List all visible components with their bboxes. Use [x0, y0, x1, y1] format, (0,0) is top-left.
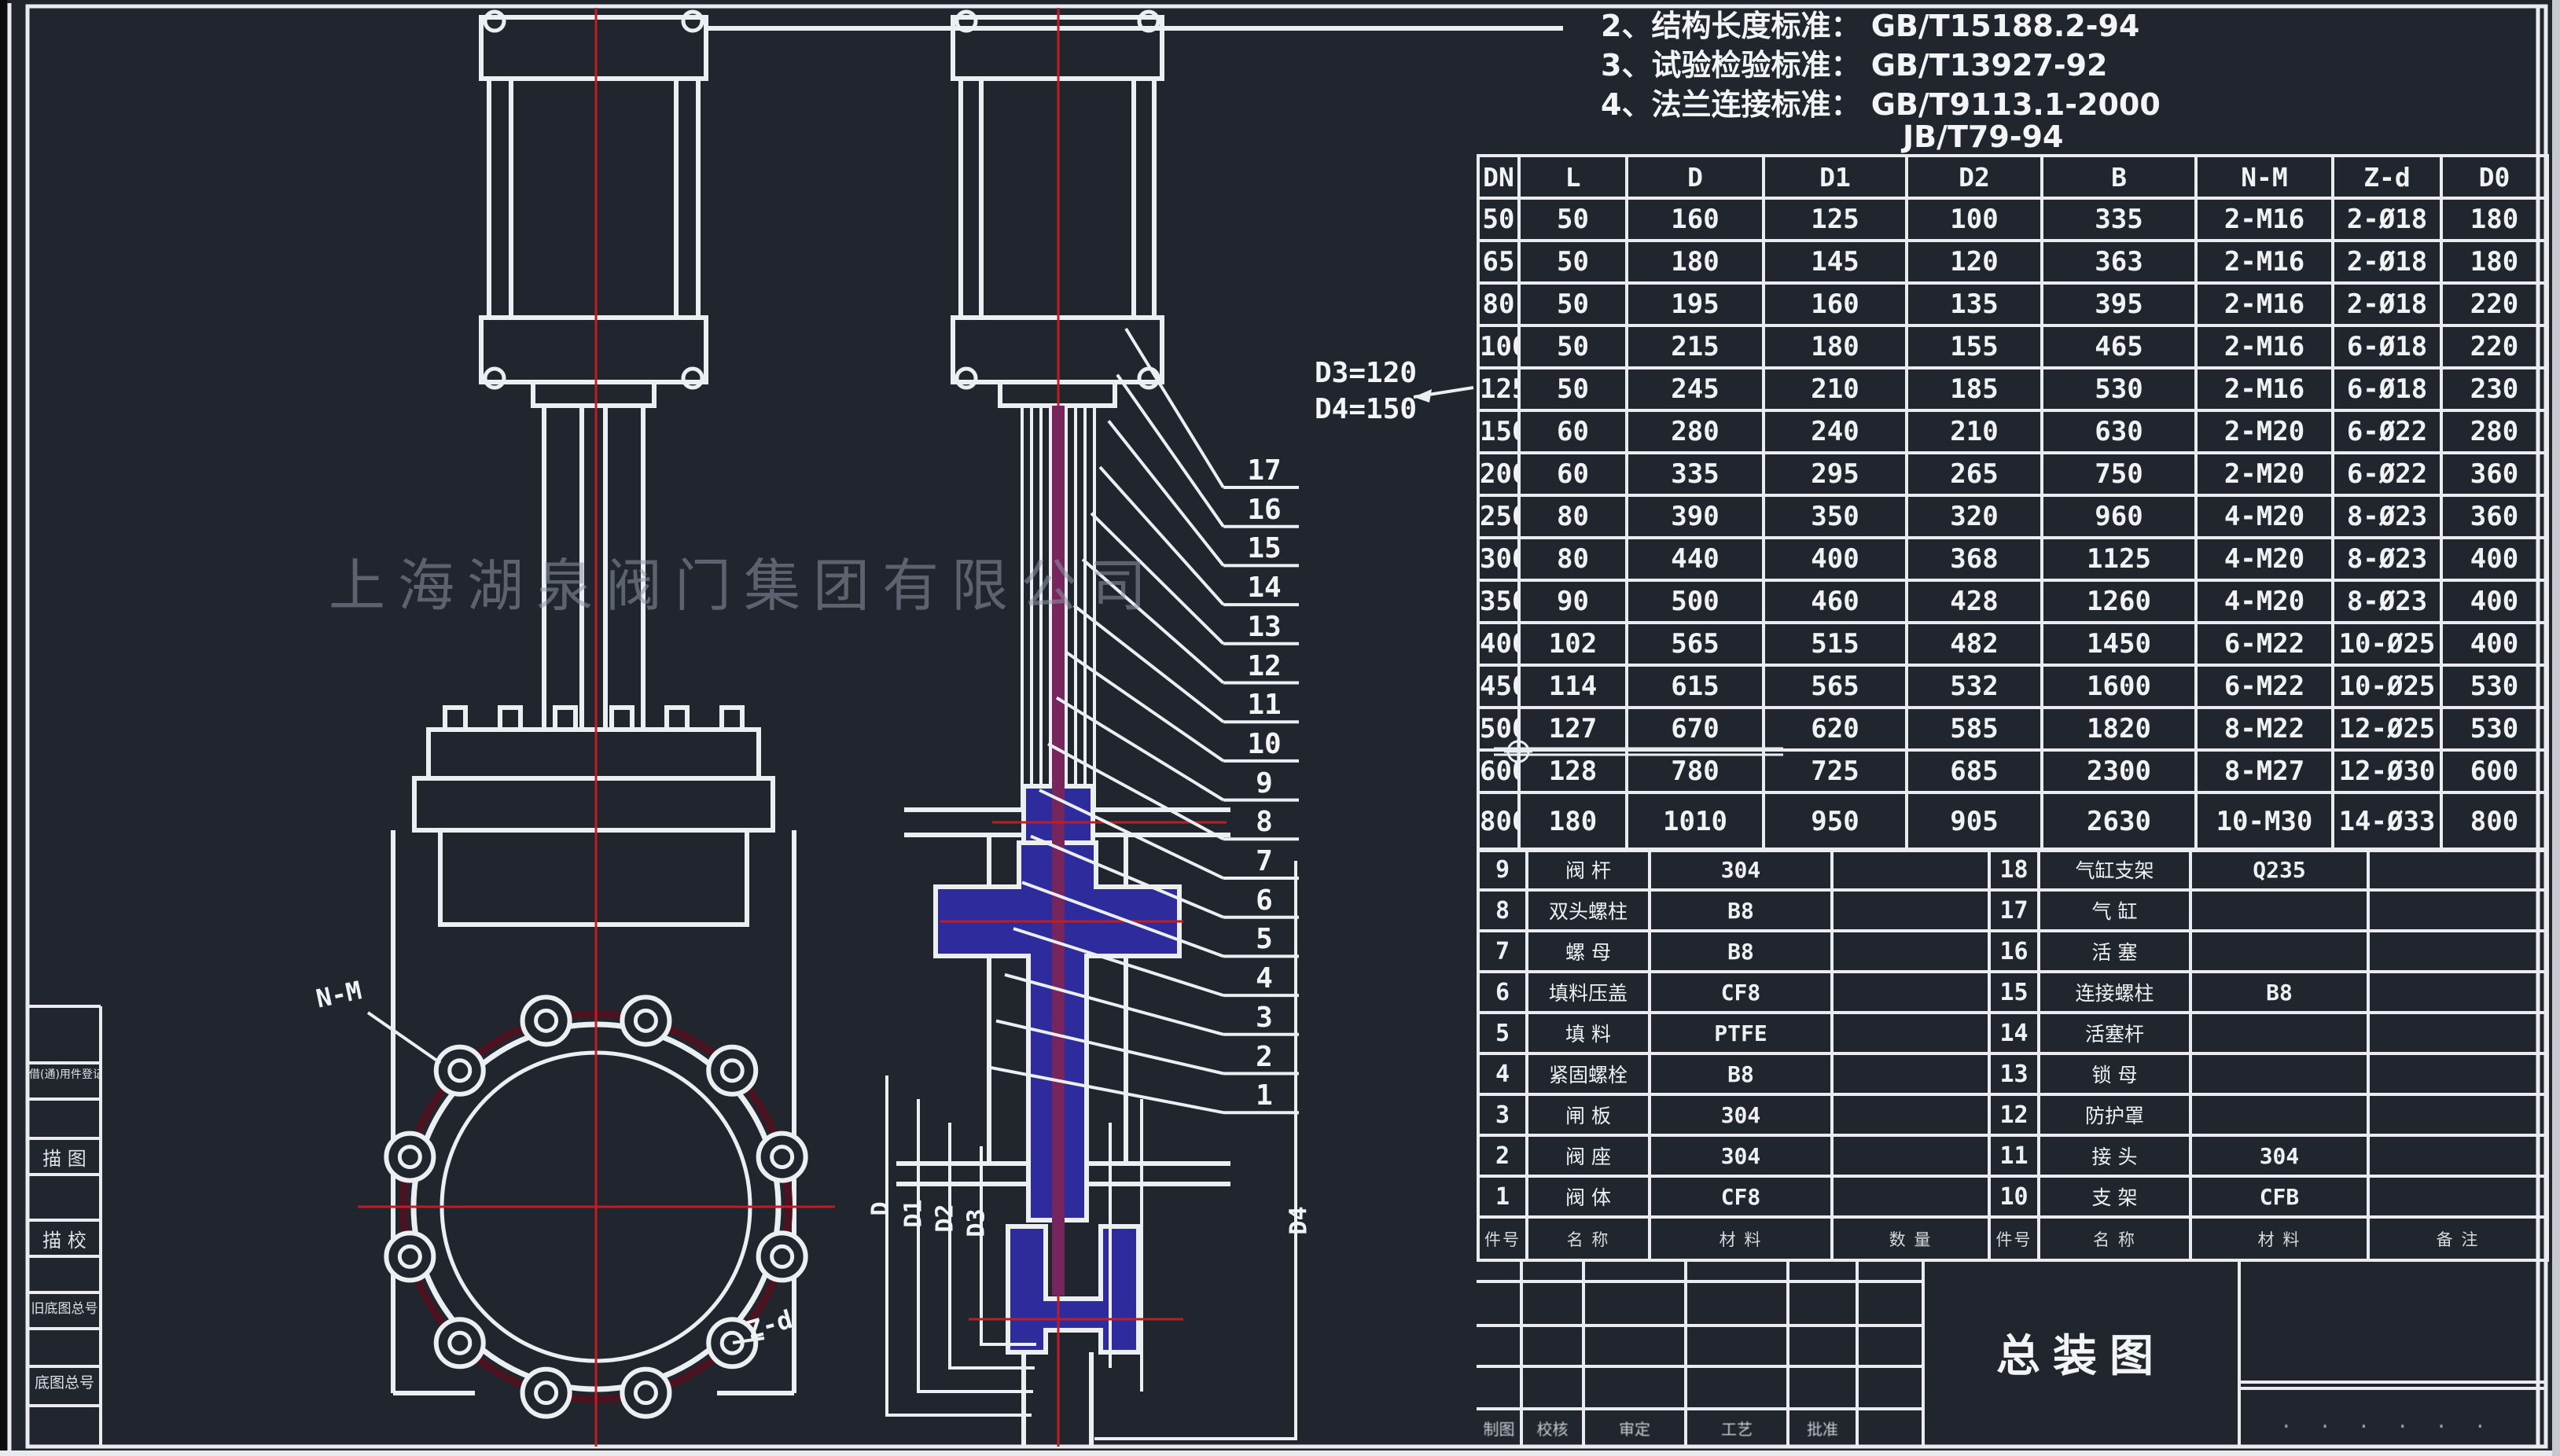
dim-row-dn-50-cell: 2-M16: [2196, 198, 2333, 241]
dim-row-dn-450-cell: 1600: [2042, 665, 2196, 708]
dim-row-dn-50-cell: 100: [1907, 198, 2042, 241]
part-row-4: 4紧固螺栓B8: [1478, 1053, 1989, 1094]
dim-row-dn-500-cell: 12-Ø25: [2333, 708, 2441, 750]
sign-cell-2: 审定: [1583, 1417, 1686, 1439]
dim-row-dn-400-cell: 565: [1627, 623, 1764, 665]
standard-note-3: 3、试验检验标准： GB/T13927-92: [1601, 41, 2108, 84]
bolt-lug: [436, 1047, 484, 1094]
dim-row-dn-600-cell: 128: [1519, 750, 1627, 792]
dim-row-dn-125-cell: 245: [1627, 368, 1764, 410]
part-row-13: 13锁 母: [1989, 1053, 2547, 1094]
part-row-15: 15连接螺柱B8: [1989, 972, 2547, 1013]
part-row-18-cell: [2368, 849, 2547, 890]
parts-table-left: 9阀 杆3048双头螺柱B87螺 母B86填料压盖CF85填 料PTFE4紧固螺…: [1477, 847, 1991, 1262]
note-label: 4、法兰连接标准：: [1601, 87, 1860, 122]
part-row-10-cell: CFB: [2190, 1176, 2368, 1217]
dim-row-dn-100-cell: 2-M16: [2196, 325, 2333, 368]
part-row-13-cell: [2190, 1053, 2368, 1094]
dim-header-row-cell: Z-d: [2333, 156, 2441, 198]
sign-cell-4: 批准: [1788, 1417, 1857, 1439]
dim-row-dn-65-cell: 2-M16: [2196, 241, 2333, 283]
dim-row-dn-450: 45011461556553216006-M2210-Ø25530: [1478, 665, 2547, 708]
dim-label-d1: D1: [900, 1190, 928, 1237]
part-row-4-cell: 紧固螺栓: [1527, 1053, 1650, 1094]
dim-row-dn-125-cell: 125: [1478, 368, 1519, 410]
dim-row-dn-300-cell: 400: [1764, 538, 1907, 580]
parts-table-right: 18气缸支架Q23517气 缸16活 塞15连接螺柱B814活塞杆13锁 母12…: [1988, 847, 2549, 1262]
dim-row-dn-800-cell: 905: [1907, 792, 2042, 851]
dim-row-dn-65-cell: 145: [1764, 241, 1907, 283]
parts-header-row-cell: 名 称: [1527, 1217, 1650, 1260]
callout-number-15: 15: [1227, 532, 1302, 564]
part-row-6-cell: 填料压盖: [1527, 972, 1650, 1013]
dim-row-dn-250-cell: 4-M20: [2196, 495, 2333, 538]
part-row-16-cell: 16: [1989, 931, 2039, 972]
dim-row-dn-125-cell: 230: [2441, 368, 2547, 410]
part-row-15-cell: 15: [1989, 972, 2039, 1013]
part-row-11-cell: 304: [2190, 1135, 2368, 1176]
dim-header-row-cell: D0: [2441, 156, 2547, 198]
dim-row-dn-500-cell: 620: [1764, 708, 1907, 750]
dim-row-dn-65-cell: 180: [2441, 241, 2547, 283]
dim-row-dn-400-cell: 482: [1907, 623, 2042, 665]
part-row-11-cell: 接 头: [2039, 1135, 2190, 1176]
callout-number-7: 7: [1227, 845, 1302, 877]
left-page-edge: [0, 0, 7, 1456]
dim-header-row: DNLDD1D2BN-MZ-dD0: [1478, 156, 2547, 198]
dim-row-dn-800-cell: 800: [1478, 792, 1519, 851]
part-row-13-cell: [2368, 1053, 2547, 1094]
dim-row-dn-200: 200603352952657502-M206-Ø22360: [1478, 453, 2547, 495]
bolt-lug: [386, 1233, 433, 1280]
part-row-3-cell: 闸 板: [1527, 1094, 1650, 1135]
part-row-17-cell: 气 缸: [2039, 890, 2190, 931]
dim-row-dn-450-cell: 450: [1478, 665, 1519, 708]
part-row-8: 8双头螺柱B8: [1478, 890, 1989, 931]
part-row-14-cell: [2368, 1013, 2547, 1053]
dim-row-dn-600-cell: 8-M27: [2196, 750, 2333, 792]
dim-row-dn-100-cell: 220: [2441, 325, 2547, 368]
dim-row-dn-125-cell: 50: [1519, 368, 1627, 410]
dim-row-dn-300-cell: 4-M20: [2196, 538, 2333, 580]
dim-row-dn-125-cell: 2-M16: [2196, 368, 2333, 410]
dim-row-dn-250-cell: 350: [1764, 495, 1907, 538]
part-row-11-cell: [2368, 1135, 2547, 1176]
dim-row-dn-350-cell: 428: [1907, 580, 2042, 623]
part-row-17: 17气 缸: [1989, 890, 2547, 931]
dim-row-dn-80-cell: 2-Ø18: [2333, 283, 2441, 325]
margin-label-3: 旧底图总号: [29, 1297, 100, 1317]
dim-row-dn-125-cell: 210: [1764, 368, 1907, 410]
bolt-lug: [436, 1319, 484, 1366]
part-row-9-cell: [1832, 849, 1989, 890]
part-row-12-cell: 12: [1989, 1094, 2039, 1135]
part-row-13-cell: 锁 母: [2039, 1053, 2190, 1094]
dim-row-dn-80-cell: 160: [1764, 283, 1907, 325]
part-row-14: 14活塞杆: [1989, 1013, 2547, 1053]
dim-row-dn-300-cell: 80: [1519, 538, 1627, 580]
part-row-8-cell: B8: [1650, 890, 1832, 931]
standard-note-2: 2、结构长度标准： GB/T15188.2-94: [1601, 2, 2139, 45]
dim-row-dn-800-cell: 800: [2441, 792, 2547, 851]
dim-row-dn-50-cell: 2-Ø18: [2333, 198, 2441, 241]
dim-row-dn-150-cell: 240: [1764, 410, 1907, 453]
dim-row-dn-400-cell: 515: [1764, 623, 1907, 665]
dim-row-dn-500-cell: 670: [1627, 708, 1764, 750]
callout-number-8: 8: [1227, 806, 1302, 838]
dim-row-dn-150-cell: 150: [1478, 410, 1519, 453]
dim-row-dn-400-cell: 400: [1478, 623, 1519, 665]
part-row-2-cell: 阀 座: [1527, 1135, 1650, 1176]
dim-row-dn-65-cell: 50: [1519, 241, 1627, 283]
dim-row-dn-450-cell: 565: [1764, 665, 1907, 708]
part-row-14-cell: [2190, 1013, 2368, 1053]
dim-row-dn-600: 60012878072568523008-M2712-Ø30600: [1478, 750, 2547, 792]
note-value: GB/T9113.1-2000: [1871, 87, 2161, 122]
dim-row-dn-80-cell: 2-M16: [2196, 283, 2333, 325]
dim-row-dn-150-cell: 6-Ø22: [2333, 410, 2441, 453]
dimension-table-grid: DNLDD1D2BN-MZ-dD050501601251003352-M162-…: [1477, 154, 2549, 852]
dim-row-dn-200-cell: 200: [1478, 453, 1519, 495]
dim-row-dn-200-cell: 6-Ø22: [2333, 453, 2441, 495]
dim-row-dn-65-cell: 180: [1627, 241, 1764, 283]
dim-row-dn-250-cell: 250: [1478, 495, 1519, 538]
part-row-11: 11接 头304: [1989, 1135, 2547, 1176]
dim-row-dn-250-cell: 8-Ø23: [2333, 495, 2441, 538]
callout-number-1: 1: [1227, 1079, 1302, 1112]
bolt-lug: [523, 997, 570, 1044]
callout-number-6: 6: [1227, 884, 1302, 917]
dimension-table: DNLDD1D2BN-MZ-dD050501601251003352-M162-…: [1477, 154, 2549, 852]
dim-row-dn-600-cell: 600: [2441, 750, 2547, 792]
part-row-5-cell: [1832, 1013, 1989, 1053]
part-row-18-cell: 18: [1989, 849, 2039, 890]
sign-cell-1: 校核: [1521, 1417, 1583, 1439]
dim-row-dn-150-cell: 210: [1907, 410, 2042, 453]
dim-row-dn-500-cell: 8-M22: [2196, 708, 2333, 750]
callout-number-14: 14: [1227, 572, 1302, 604]
bolt-lug: [759, 1134, 806, 1181]
part-row-15-cell: [2368, 972, 2547, 1013]
cad-drawing-sheet: 2、结构长度标准： GB/T15188.2-94 3、试验检验标准： GB/T1…: [0, 0, 2560, 1456]
dim-row-dn-350-cell: 350: [1478, 580, 1519, 623]
dim-row-dn-800-cell: 10-M30: [2196, 792, 2333, 851]
dim-row-dn-125: 125502452101855302-M166-Ø18230: [1478, 368, 2547, 410]
bolt-lug: [622, 997, 669, 1044]
dim-row-dn-800: 8001801010950905263010-M3014-Ø33800: [1478, 792, 2547, 851]
bolt-lug: [386, 1134, 433, 1181]
part-row-16-cell: [2190, 931, 2368, 972]
dim-row-dn-600-cell: 600: [1478, 750, 1519, 792]
dim-row-dn-65-cell: 363: [2042, 241, 2196, 283]
dim-row-dn-125-cell: 6-Ø18: [2333, 368, 2441, 410]
part-row-8-cell: [1832, 890, 1989, 931]
dim-row-dn-350-cell: 4-M20: [2196, 580, 2333, 623]
dim-header-row-cell: D: [1627, 156, 1764, 198]
note-label: 3、试验检验标准：: [1601, 48, 1860, 83]
dim-row-dn-125-cell: 530: [2042, 368, 2196, 410]
dim-row-dn-600-cell: 2300: [2042, 750, 2196, 792]
part-row-10: 10支 架CFB: [1989, 1176, 2547, 1217]
dim-row-dn-200-cell: 60: [1519, 453, 1627, 495]
part-row-6-cell: 6: [1478, 972, 1527, 1013]
callout-number-10: 10: [1227, 728, 1302, 760]
bolt-lug: [708, 1047, 756, 1094]
dim-row-dn-350-cell: 500: [1627, 580, 1764, 623]
dim-row-dn-80: 80501951601353952-M162-Ø18220: [1478, 283, 2547, 325]
dim-row-dn-400-cell: 400: [2441, 623, 2547, 665]
parts-header-row-cell: 件号: [1478, 1217, 1527, 1260]
part-row-1-cell: CF8: [1650, 1176, 1832, 1217]
dim-header-row-cell: L: [1519, 156, 1627, 198]
parts-header-row-cell: 件号: [1989, 1217, 2039, 1260]
dim-row-dn-350-cell: 8-Ø23: [2333, 580, 2441, 623]
callout-number-2: 2: [1227, 1041, 1302, 1073]
dim-row-dn-450-cell: 615: [1627, 665, 1764, 708]
dim-row-dn-300: 3008044040036811254-M208-Ø23400: [1478, 538, 2547, 580]
part-row-9-cell: 9: [1478, 849, 1527, 890]
part-row-12-cell: 防护罩: [2039, 1094, 2190, 1135]
parts-header-row-cell: 材 料: [1650, 1217, 1832, 1260]
note-value: GB/T13927-92: [1871, 48, 2108, 83]
part-row-1-cell: 1: [1478, 1176, 1527, 1217]
note-value: JB/T79-94: [1903, 119, 2063, 154]
part-row-4-cell: 4: [1478, 1053, 1527, 1094]
part-row-2: 2阀 座304: [1478, 1135, 1989, 1176]
dim-row-dn-50-cell: 50: [1519, 198, 1627, 241]
dim-row-dn-200-cell: 335: [1627, 453, 1764, 495]
dim-row-dn-300-cell: 1125: [2042, 538, 2196, 580]
dim-row-dn-600-cell: 780: [1627, 750, 1764, 792]
dim-row-dn-65-cell: 120: [1907, 241, 2042, 283]
part-row-3: 3闸 板304: [1478, 1094, 1989, 1135]
dim-header-row-cell: D2: [1907, 156, 2042, 198]
part-row-4-cell: [1832, 1053, 1989, 1094]
parts-list-left: 9阀 杆3048双头螺柱B87螺 母B86填料压盖CF85填 料PTFE4紧固螺…: [1477, 847, 1991, 1262]
part-row-5-cell: 填 料: [1527, 1013, 1650, 1053]
dim-row-dn-80-cell: 220: [2441, 283, 2547, 325]
bolt-lug: [759, 1233, 806, 1280]
dim-row-dn-250-cell: 390: [1627, 495, 1764, 538]
callout-number-13: 13: [1227, 611, 1302, 643]
part-row-17-cell: [2190, 890, 2368, 931]
part-row-7-cell: 7: [1478, 931, 1527, 972]
part-row-16-cell: [2368, 931, 2547, 972]
part-row-15-cell: 连接螺柱: [2039, 972, 2190, 1013]
dim-row-dn-500-cell: 500: [1478, 708, 1519, 750]
part-row-18: 18气缸支架Q235: [1989, 849, 2547, 890]
dim-row-dn-100-cell: 465: [2042, 325, 2196, 368]
part-row-7-cell: B8: [1650, 931, 1832, 972]
part-row-6: 6填料压盖CF8: [1478, 972, 1989, 1013]
dim-row-dn-80-cell: 50: [1519, 283, 1627, 325]
dim-row-dn-150: 150602802402106302-M206-Ø22280: [1478, 410, 2547, 453]
callout-number-17: 17: [1227, 454, 1302, 487]
dim-row-dn-300-cell: 368: [1907, 538, 2042, 580]
part-row-1-cell: [1832, 1176, 1989, 1217]
dim-label-d: D: [867, 1186, 895, 1233]
dim-row-dn-300-cell: 300: [1478, 538, 1519, 580]
part-row-5-cell: 5: [1478, 1013, 1527, 1053]
part-row-9-cell: 阀 杆: [1527, 849, 1650, 890]
part-row-10-cell: 10: [1989, 1176, 2039, 1217]
dim-row-dn-200-cell: 750: [2042, 453, 2196, 495]
dim-row-dn-100-cell: 215: [1627, 325, 1764, 368]
dim-row-dn-80-cell: 195: [1627, 283, 1764, 325]
dim-row-dn-800-cell: 14-Ø33: [2333, 792, 2441, 851]
dim-row-dn-50-cell: 50: [1478, 198, 1519, 241]
dim-row-dn-450-cell: 6-M22: [2196, 665, 2333, 708]
part-row-17-cell: [2368, 890, 2547, 931]
drawing-title: 总装图: [1923, 1259, 2239, 1447]
part-row-1: 1阀 体CF8: [1478, 1176, 1989, 1217]
dim-row-dn-300-cell: 440: [1627, 538, 1764, 580]
dim-row-dn-300-cell: 8-Ø23: [2333, 538, 2441, 580]
dim-row-dn-65: 65501801451203632-M162-Ø18180: [1478, 241, 2547, 283]
dim-row-dn-800-cell: 2630: [2042, 792, 2196, 851]
dim-row-dn-450-cell: 10-Ø25: [2333, 665, 2441, 708]
parts-header-row: 件号名 称材 料备 注: [1989, 1217, 2547, 1260]
dim-row-dn-600-cell: 685: [1907, 750, 2042, 792]
part-row-12-cell: [2190, 1094, 2368, 1135]
dim-row-dn-250-cell: 960: [2042, 495, 2196, 538]
part-row-11-cell: 11: [1989, 1135, 2039, 1176]
dim-row-dn-400-cell: 6-M22: [2196, 623, 2333, 665]
dim-header-row-cell: N-M: [2196, 156, 2333, 198]
callout-number-4: 4: [1227, 962, 1302, 995]
dim-row-dn-80-cell: 80: [1478, 283, 1519, 325]
dim-row-dn-50-cell: 335: [2042, 198, 2196, 241]
parts-header-row: 件号名 称材 料数 量: [1478, 1217, 1989, 1260]
dim-row-dn-350-cell: 460: [1764, 580, 1907, 623]
callout-leader: [1065, 652, 1223, 761]
dim-header-row-cell: B: [2042, 156, 2196, 198]
callout-number-16: 16: [1227, 494, 1302, 526]
dim-row-dn-100-cell: 180: [1764, 325, 1907, 368]
standard-note-4: 4、法兰连接标准： GB/T9113.1-2000: [1601, 80, 2161, 123]
dim-row-dn-150-cell: 630: [2042, 410, 2196, 453]
part-row-7-cell: [1832, 931, 1989, 972]
dim-row-dn-450-cell: 114: [1519, 665, 1627, 708]
part-row-2-cell: [1832, 1135, 1989, 1176]
part-row-10-cell: 支 架: [2039, 1176, 2190, 1217]
dim-row-dn-500-cell: 127: [1519, 708, 1627, 750]
part-row-5: 5填 料PTFE: [1478, 1013, 1989, 1053]
dim-row-dn-350-cell: 400: [2441, 580, 2547, 623]
part-row-14-cell: 活塞杆: [2039, 1013, 2190, 1053]
dim-label-d4: D4: [1286, 1197, 1313, 1245]
dim-row-dn-800-cell: 1010: [1627, 792, 1764, 851]
dim-row-dn-800-cell: 180: [1519, 792, 1627, 851]
dim-row-dn-100-cell: 155: [1907, 325, 2042, 368]
dim-row-dn-450-cell: 530: [2441, 665, 2547, 708]
dim-row-dn-300-cell: 400: [2441, 538, 2547, 580]
dim-row-dn-100-cell: 50: [1519, 325, 1627, 368]
dim-row-dn-50-cell: 160: [1627, 198, 1764, 241]
part-row-4-cell: B8: [1650, 1053, 1832, 1094]
company-watermark: 上海湖泉阀门集团有限公司: [329, 539, 1159, 622]
bottom-page-edge: [0, 1450, 2560, 1456]
dim-row-dn-500-cell: 585: [1907, 708, 2042, 750]
dim-row-dn-100-cell: 6-Ø18: [2333, 325, 2441, 368]
bolt-lug: [622, 1370, 669, 1417]
part-row-2-cell: 2: [1478, 1135, 1527, 1176]
dim-header-row-cell: D1: [1764, 156, 1907, 198]
dim-row-dn-80-cell: 395: [2042, 283, 2196, 325]
part-row-9: 9阀 杆304: [1478, 849, 1989, 890]
part-row-12: 12防护罩: [1989, 1094, 2547, 1135]
dim-row-dn-200-cell: 265: [1907, 453, 2042, 495]
dim-row-dn-150-cell: 280: [1627, 410, 1764, 453]
margin-label-0: 借(通)用件登记: [29, 1066, 100, 1082]
note-label: 2、结构长度标准：: [1601, 9, 1860, 43]
dim-row-dn-150-cell: 60: [1519, 410, 1627, 453]
part-row-7: 7螺 母B8: [1478, 931, 1989, 972]
part-row-5-cell: PTFE: [1650, 1013, 1832, 1053]
dim-row-dn-80-cell: 135: [1907, 283, 2042, 325]
dim-row-dn-200-cell: 295: [1764, 453, 1907, 495]
part-row-7-cell: 螺 母: [1527, 931, 1650, 972]
dim-row-dn-65-cell: 2-Ø18: [2333, 241, 2441, 283]
part-row-16: 16活 塞: [1989, 931, 2547, 972]
corner-marks: · · · · · ·: [2280, 1415, 2540, 1439]
dim-row-dn-150-cell: 2-M20: [2196, 410, 2333, 453]
dim-row-dn-450-cell: 532: [1907, 665, 2042, 708]
part-row-16-cell: 活 塞: [2039, 931, 2190, 972]
part-row-1-cell: 阀 体: [1527, 1176, 1650, 1217]
standard-note-jb: JB/T79-94: [1903, 119, 2063, 154]
dim-row-dn-100-cell: 100: [1478, 325, 1519, 368]
dim-row-dn-250: 250803903503209604-M208-Ø23360: [1478, 495, 2547, 538]
d3-d4-note: D3=120 D4=150: [1315, 355, 1417, 428]
part-row-12-cell: [2368, 1094, 2547, 1135]
part-row-2-cell: 304: [1650, 1135, 1832, 1176]
dim-row-dn-800-cell: 950: [1764, 792, 1907, 851]
part-row-18-cell: 气缸支架: [2039, 849, 2190, 890]
dim-row-dn-400-cell: 10-Ø25: [2333, 623, 2441, 665]
part-row-3-cell: [1832, 1094, 1989, 1135]
sign-cell-0: 制图: [1477, 1417, 1521, 1439]
part-row-8-cell: 双头螺柱: [1527, 890, 1650, 931]
dim-row-dn-100: 100502151801554652-M166-Ø18220: [1478, 325, 2547, 368]
callout-number-3: 3: [1227, 1002, 1302, 1034]
part-row-18-cell: Q235: [2190, 849, 2368, 890]
part-row-6-cell: [1832, 972, 1989, 1013]
dim-row-dn-250-cell: 320: [1907, 495, 2042, 538]
sign-cell-3: 工艺: [1686, 1417, 1788, 1439]
right-page-edge: [2552, 0, 2560, 1456]
callout-number-5: 5: [1227, 923, 1302, 955]
dim-row-dn-350-cell: 90: [1519, 580, 1627, 623]
margin-label-1: 描 图: [29, 1143, 100, 1171]
dim-row-dn-50-cell: 180: [2441, 198, 2547, 241]
part-row-3-cell: 304: [1650, 1094, 1832, 1135]
dim-row-dn-350-cell: 1260: [2042, 580, 2196, 623]
d4-note-line: D4=150: [1315, 392, 1417, 428]
callout-number-12: 12: [1227, 650, 1302, 682]
dim-row-dn-600-cell: 12-Ø30: [2333, 750, 2441, 792]
dim-row-dn-500: 50012767062058518208-M2212-Ø25530: [1478, 708, 2547, 750]
bolt-lug: [523, 1370, 570, 1417]
dim-row-dn-50: 50501601251003352-M162-Ø18180: [1478, 198, 2547, 241]
part-row-6-cell: CF8: [1650, 972, 1832, 1013]
parts-header-row-cell: 数 量: [1832, 1217, 1989, 1260]
dim-row-dn-250-cell: 80: [1519, 495, 1627, 538]
part-row-9-cell: 304: [1650, 849, 1832, 890]
dim-row-dn-50-cell: 125: [1764, 198, 1907, 241]
parts-header-row-cell: 备 注: [2368, 1217, 2547, 1260]
dim-row-dn-400-cell: 102: [1519, 623, 1627, 665]
